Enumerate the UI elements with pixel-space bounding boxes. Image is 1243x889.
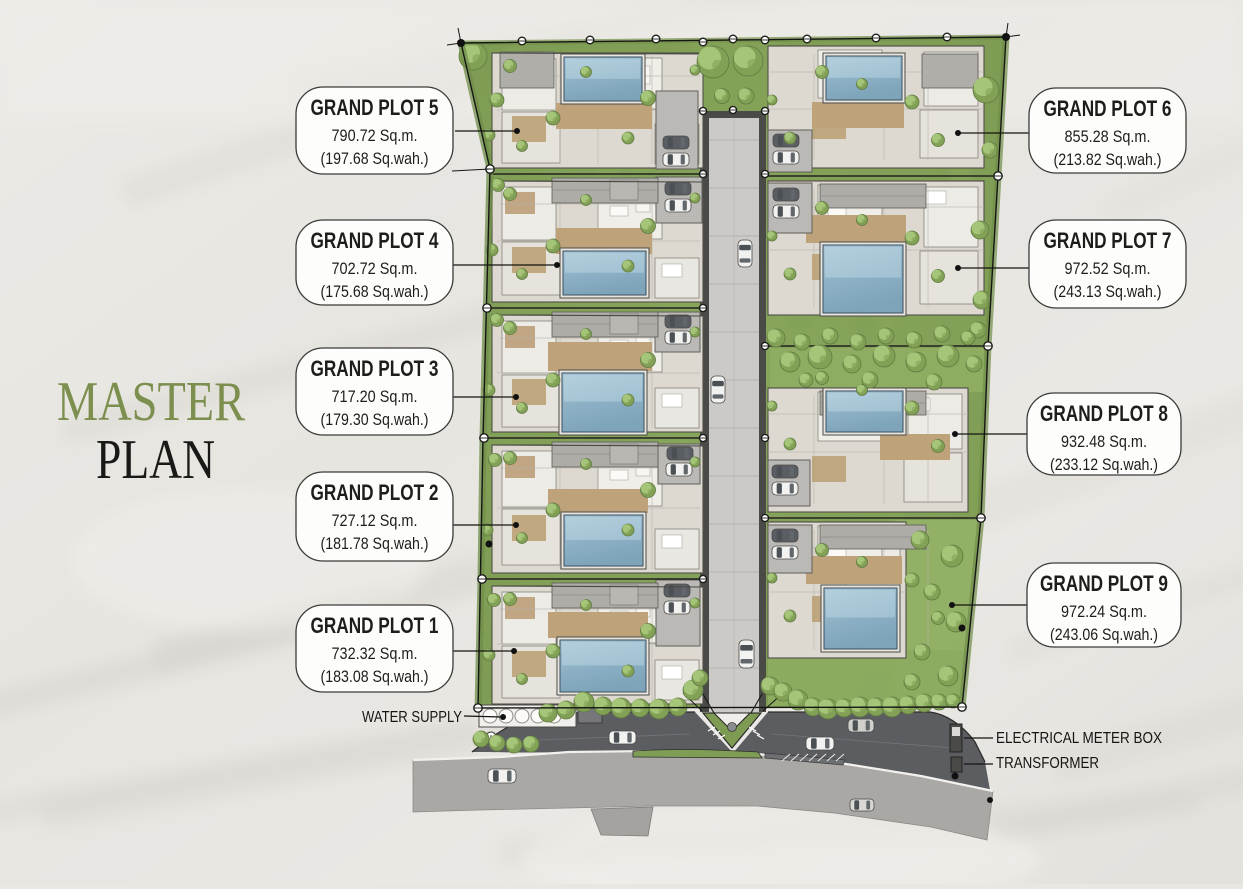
- svg-text:GRAND PLOT 5: GRAND PLOT 5: [311, 95, 439, 120]
- svg-text:972.24 Sq.m.: 972.24 Sq.m.: [1061, 602, 1147, 621]
- svg-text:GRAND PLOT 1: GRAND PLOT 1: [311, 613, 439, 638]
- svg-text:GRAND PLOT 3: GRAND PLOT 3: [311, 356, 439, 381]
- svg-text:GRAND PLOT 6: GRAND PLOT 6: [1044, 96, 1172, 121]
- svg-text:727.12 Sq.m.: 727.12 Sq.m.: [332, 511, 418, 530]
- svg-text:WATER SUPPLY: WATER SUPPLY: [362, 709, 462, 726]
- svg-text:GRAND PLOT 2: GRAND PLOT 2: [311, 480, 439, 505]
- svg-text:(243.06 Sq.wah.): (243.06 Sq.wah.): [1050, 625, 1158, 644]
- svg-text:MASTER: MASTER: [57, 371, 246, 433]
- svg-text:932.48 Sq.m.: 932.48 Sq.m.: [1061, 432, 1147, 451]
- svg-text:TRANSFORMER: TRANSFORMER: [996, 755, 1099, 772]
- svg-text:(243.13 Sq.wah.): (243.13 Sq.wah.): [1054, 282, 1162, 301]
- svg-text:790.72 Sq.m.: 790.72 Sq.m.: [332, 126, 418, 145]
- svg-text:PLAN: PLAN: [96, 429, 215, 491]
- svg-text:GRAND PLOT 9: GRAND PLOT 9: [1040, 571, 1168, 596]
- svg-text:702.72 Sq.m.: 702.72 Sq.m.: [332, 259, 418, 278]
- svg-text:GRAND PLOT 7: GRAND PLOT 7: [1044, 228, 1172, 253]
- svg-text:(183.08 Sq.wah.): (183.08 Sq.wah.): [321, 667, 429, 686]
- svg-text:GRAND PLOT 8: GRAND PLOT 8: [1040, 401, 1168, 426]
- svg-text:ELECTRICAL METER BOX: ELECTRICAL METER BOX: [996, 730, 1163, 747]
- svg-text:(175.68 Sq.wah.): (175.68 Sq.wah.): [321, 282, 429, 301]
- svg-text:(233.12 Sq.wah.): (233.12 Sq.wah.): [1050, 455, 1158, 474]
- svg-text:717.20 Sq.m.: 717.20 Sq.m.: [332, 387, 418, 406]
- svg-text:855.28 Sq.m.: 855.28 Sq.m.: [1065, 127, 1151, 146]
- svg-text:972.52 Sq.m.: 972.52 Sq.m.: [1065, 259, 1151, 278]
- svg-text:(197.68 Sq.wah.): (197.68 Sq.wah.): [321, 149, 429, 168]
- svg-text:(213.82 Sq.wah.): (213.82 Sq.wah.): [1054, 150, 1162, 169]
- svg-text:GRAND PLOT 4: GRAND PLOT 4: [311, 228, 440, 253]
- svg-text:(179.30 Sq.wah.): (179.30 Sq.wah.): [321, 410, 429, 429]
- svg-text:732.32 Sq.m.: 732.32 Sq.m.: [332, 644, 418, 663]
- svg-text:(181.78 Sq.wah.): (181.78 Sq.wah.): [321, 534, 429, 553]
